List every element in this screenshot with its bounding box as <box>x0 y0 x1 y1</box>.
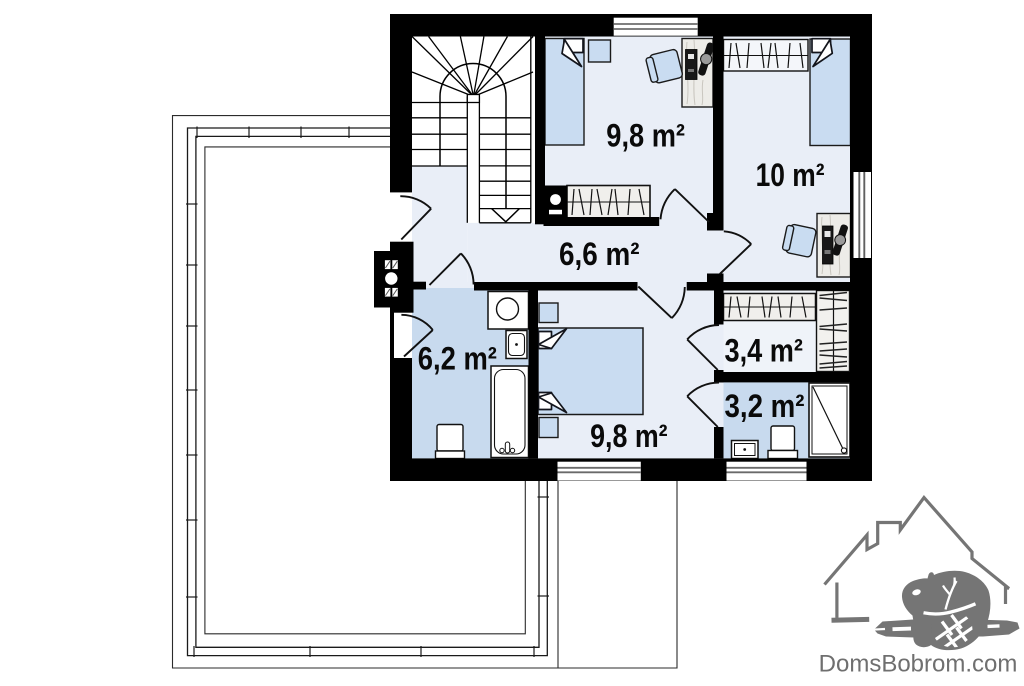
svg-text:6,6 m²: 6,6 m² <box>559 236 640 272</box>
svg-text:9,8 m²: 9,8 m² <box>606 118 685 154</box>
svg-text:10 m²: 10 m² <box>756 157 825 193</box>
svg-text:3,4 m²: 3,4 m² <box>725 333 803 369</box>
svg-text:6,2 m²: 6,2 m² <box>418 340 497 376</box>
svg-text:9,8 m²: 9,8 m² <box>590 418 668 454</box>
svg-text:DomsBobrom.com: DomsBobrom.com <box>819 651 1018 678</box>
svg-text:3,2 m²: 3,2 m² <box>725 388 805 424</box>
